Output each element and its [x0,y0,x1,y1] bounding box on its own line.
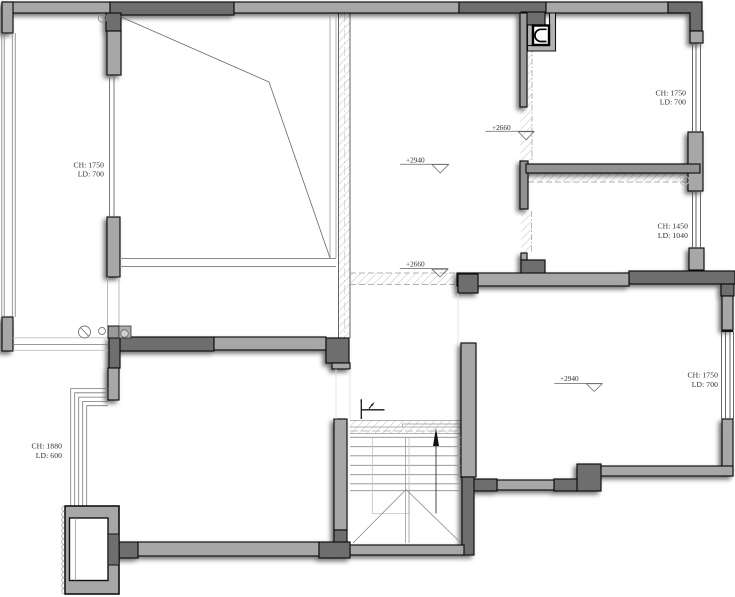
svg-text:LD: 700: LD: 700 [660,98,686,107]
svg-text:LD: 600: LD: 600 [36,451,62,460]
svg-text:LD: 1040: LD: 1040 [658,231,688,240]
svg-text:CH: 1880: CH: 1880 [31,442,62,451]
svg-text:CH: 1750: CH: 1750 [73,161,104,170]
svg-text:+2940: +2940 [406,156,425,165]
svg-text:CH: 1750: CH: 1750 [687,370,718,379]
svg-text:LD: 700: LD: 700 [692,380,718,389]
svg-text:CH: 1750: CH: 1750 [655,89,686,98]
svg-text:+2940: +2940 [560,374,579,383]
svg-text:CH: 1450: CH: 1450 [657,222,688,231]
svg-text:C: C [682,178,686,185]
svg-text:+2660: +2660 [406,259,425,268]
svg-text:LD: 700: LD: 700 [78,170,104,179]
svg-text:+2660: +2660 [492,123,511,132]
